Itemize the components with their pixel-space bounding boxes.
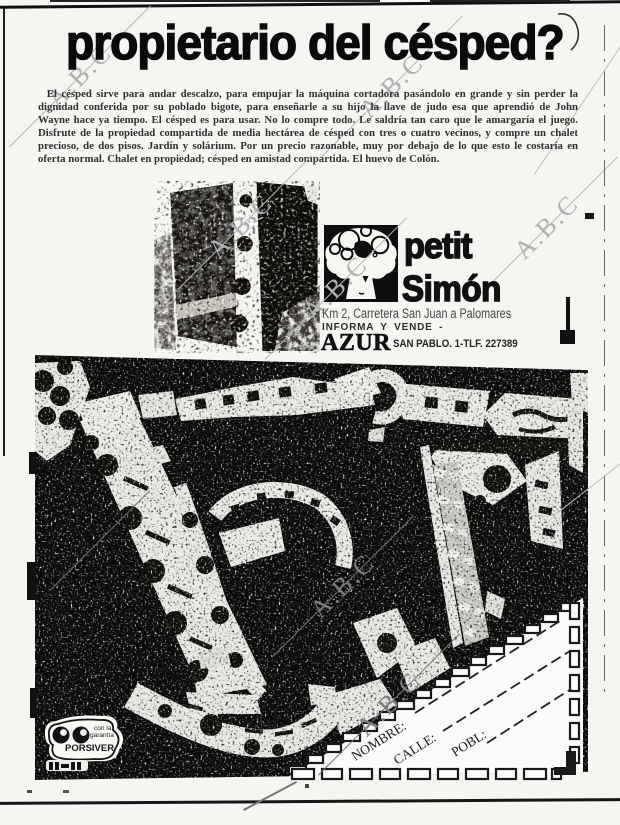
- svg-text:garantía: garantía: [90, 732, 114, 739]
- svg-text:con la: con la: [94, 725, 112, 732]
- svg-text:PORSIVER: PORSIVER: [65, 743, 114, 754]
